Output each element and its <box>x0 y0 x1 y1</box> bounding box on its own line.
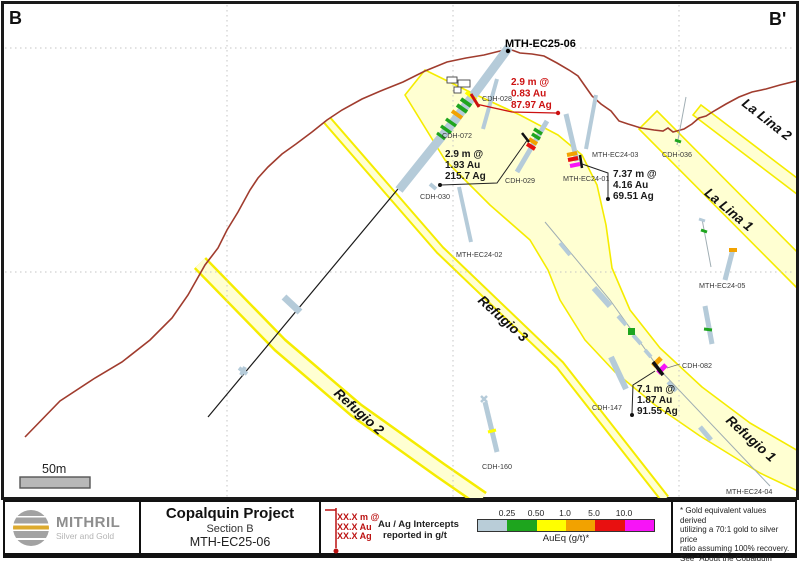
annotation-cdh-028: 2.9 m @ 0.83 Au 87.97 Ag <box>511 77 552 111</box>
hole-label-cdh-036: CDH-036 <box>662 150 692 159</box>
hole-label-cdh-028: CDH-028 <box>482 94 512 103</box>
description-line: Au / Ag Intercepts <box>378 519 459 530</box>
hole-id: MTH-EC25-06 <box>190 535 271 549</box>
footnote-line: ratio assuming 100% recovery. <box>680 544 790 554</box>
featured-hole-label: MTH-EC25-06 <box>505 38 576 50</box>
intercept-key-sample: XX.X m @ XX.X Au XX.X Ag <box>337 513 379 542</box>
swatch-yellow <box>537 520 566 531</box>
cross-section-page: 2.9 m @ 0.83 Au 87.97 Ag 2.9 m @ 1.93 Au… <box>0 0 800 561</box>
interval-green <box>628 328 635 335</box>
hole-label-cdh-082: CDH-082 <box>682 361 712 370</box>
section-marker-right: B' <box>769 9 786 29</box>
footnote-line: utilizing a 70:1 gold to silver price <box>680 525 790 544</box>
hole-label-mth-ec24-02: MTH-EC24-02 <box>456 250 502 259</box>
scale-tick: 5.0 <box>588 508 600 518</box>
hole-label-cdh-072: CDH-072 <box>442 131 472 140</box>
swatch-magenta <box>625 520 654 531</box>
footnote-line: * Gold equivalent values derived <box>680 506 790 525</box>
title-box: Copalquin Project Section B MTH-EC25-06 <box>141 502 321 553</box>
annotation-cdh-029: 2.9 m @ 1.93 Au 215.7 Ag <box>445 149 486 182</box>
svg-text:50m: 50m <box>42 462 66 476</box>
brand-name: MITHRIL <box>56 514 120 531</box>
brand-tagline: Silver and Gold <box>56 531 120 541</box>
hole-label-mth-ec24-03: MTH-EC24-03 <box>592 150 638 159</box>
hole-label-mth-ec24-01: MTH-EC24-01 <box>563 174 609 183</box>
hole-label-cdh-147: CDH-147 <box>592 403 622 412</box>
hole-label-cdh-030: CDH-030 <box>420 192 450 201</box>
hole-label-cdh-029: CDH-029 <box>505 176 535 185</box>
swatch-orange <box>566 520 595 531</box>
brand-box: MITHRIL Silver and Gold <box>5 502 141 553</box>
swatch-blue-gray <box>478 520 507 531</box>
swatch-green <box>507 520 536 531</box>
section-name: Section B <box>206 523 253 536</box>
scale-color-bar <box>477 519 655 532</box>
hole-label-mth-ec24-04: MTH-EC24-04 <box>726 487 772 496</box>
scale-tick: 0.25 <box>499 508 516 518</box>
scale-tick: 0.50 <box>528 508 545 518</box>
description-line: reported in g/t <box>378 530 459 541</box>
mithril-logo-icon <box>13 510 49 546</box>
sample-line: XX.X Ag <box>337 532 379 542</box>
footnote-box: * Gold equivalent values derived utilizi… <box>673 502 795 553</box>
hole-label-mth-ec24-05: MTH-EC24-05 <box>699 281 745 290</box>
annotation-cdh-082: 7.1 m @ 1.87 Au 91.55 Ag <box>637 384 678 417</box>
footnote-line: See "About the Copalquin Gold <box>680 554 790 561</box>
legend-box: XX.X m @ XX.X Au XX.X Ag Au / Ag Interce… <box>321 502 673 553</box>
swatch-red <box>595 520 624 531</box>
intercept-key-description: Au / Ag Intercepts reported in g/t <box>378 519 459 541</box>
scale-label: AuEq (g/t)* <box>477 533 655 544</box>
aueq-color-scale: 0.25 0.50 1.0 5.0 10.0 AuEq (g/t)* <box>477 508 655 544</box>
scale-tick: 10.0 <box>616 508 633 518</box>
scale-ticks: 0.25 0.50 1.0 5.0 10.0 <box>477 508 655 519</box>
hole-label-cdh-160: CDH-160 <box>482 462 512 471</box>
title-block-footer: MITHRIL Silver and Gold Copalquin Projec… <box>3 500 797 558</box>
section-marker-left: B <box>9 8 22 28</box>
scale-tick: 1.0 <box>559 508 571 518</box>
section-map: 2.9 m @ 0.83 Au 87.97 Ag 2.9 m @ 1.93 Au… <box>0 0 800 501</box>
map-frame <box>3 3 798 499</box>
project-title: Copalquin Project <box>166 505 294 522</box>
